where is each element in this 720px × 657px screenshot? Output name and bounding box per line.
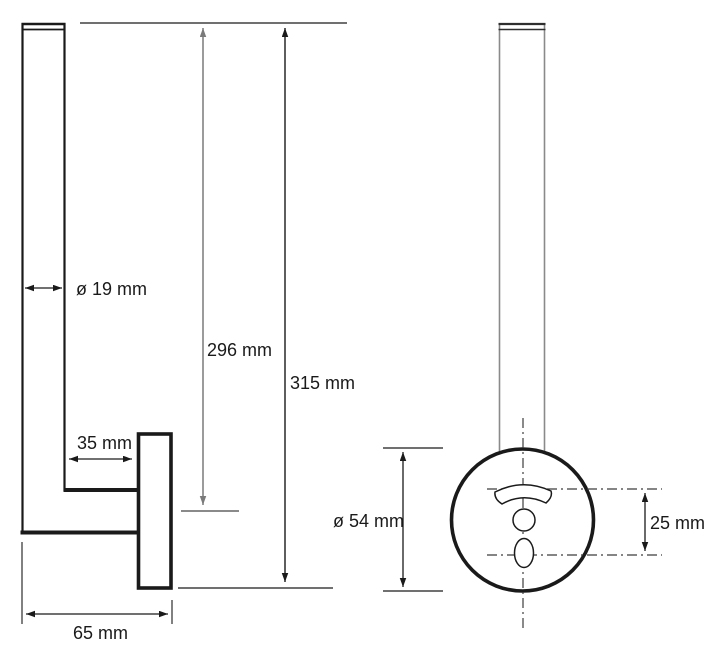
side-view-dimensions: ø 19 mm 296 mm 315 mm 35 mm 65 mm	[22, 23, 355, 643]
dim-label-total-height: 315 mm	[290, 373, 355, 393]
dim-label-rod-diameter: ø 19 mm	[76, 279, 147, 299]
dim-label-hole-spacing: 25 mm	[650, 513, 705, 533]
dim-label-plate-diameter: ø 54 mm	[333, 511, 404, 531]
lower-keyhole	[515, 539, 534, 568]
dim-label-rod-height: 296 mm	[207, 340, 272, 360]
side-view	[21, 23, 172, 588]
front-view	[452, 23, 663, 628]
holder-technical-drawing: ø 19 mm 296 mm 315 mm 35 mm 65 mm	[0, 0, 720, 657]
technical-drawing-page: ø 19 mm 296 mm 315 mm 35 mm 65 mm	[0, 0, 720, 657]
dim-label-base-depth: 65 mm	[73, 623, 128, 643]
dim-label-arm-depth: 35 mm	[77, 433, 132, 453]
wall-plate-side-outline	[139, 434, 172, 588]
center-screw-hole	[513, 509, 535, 531]
